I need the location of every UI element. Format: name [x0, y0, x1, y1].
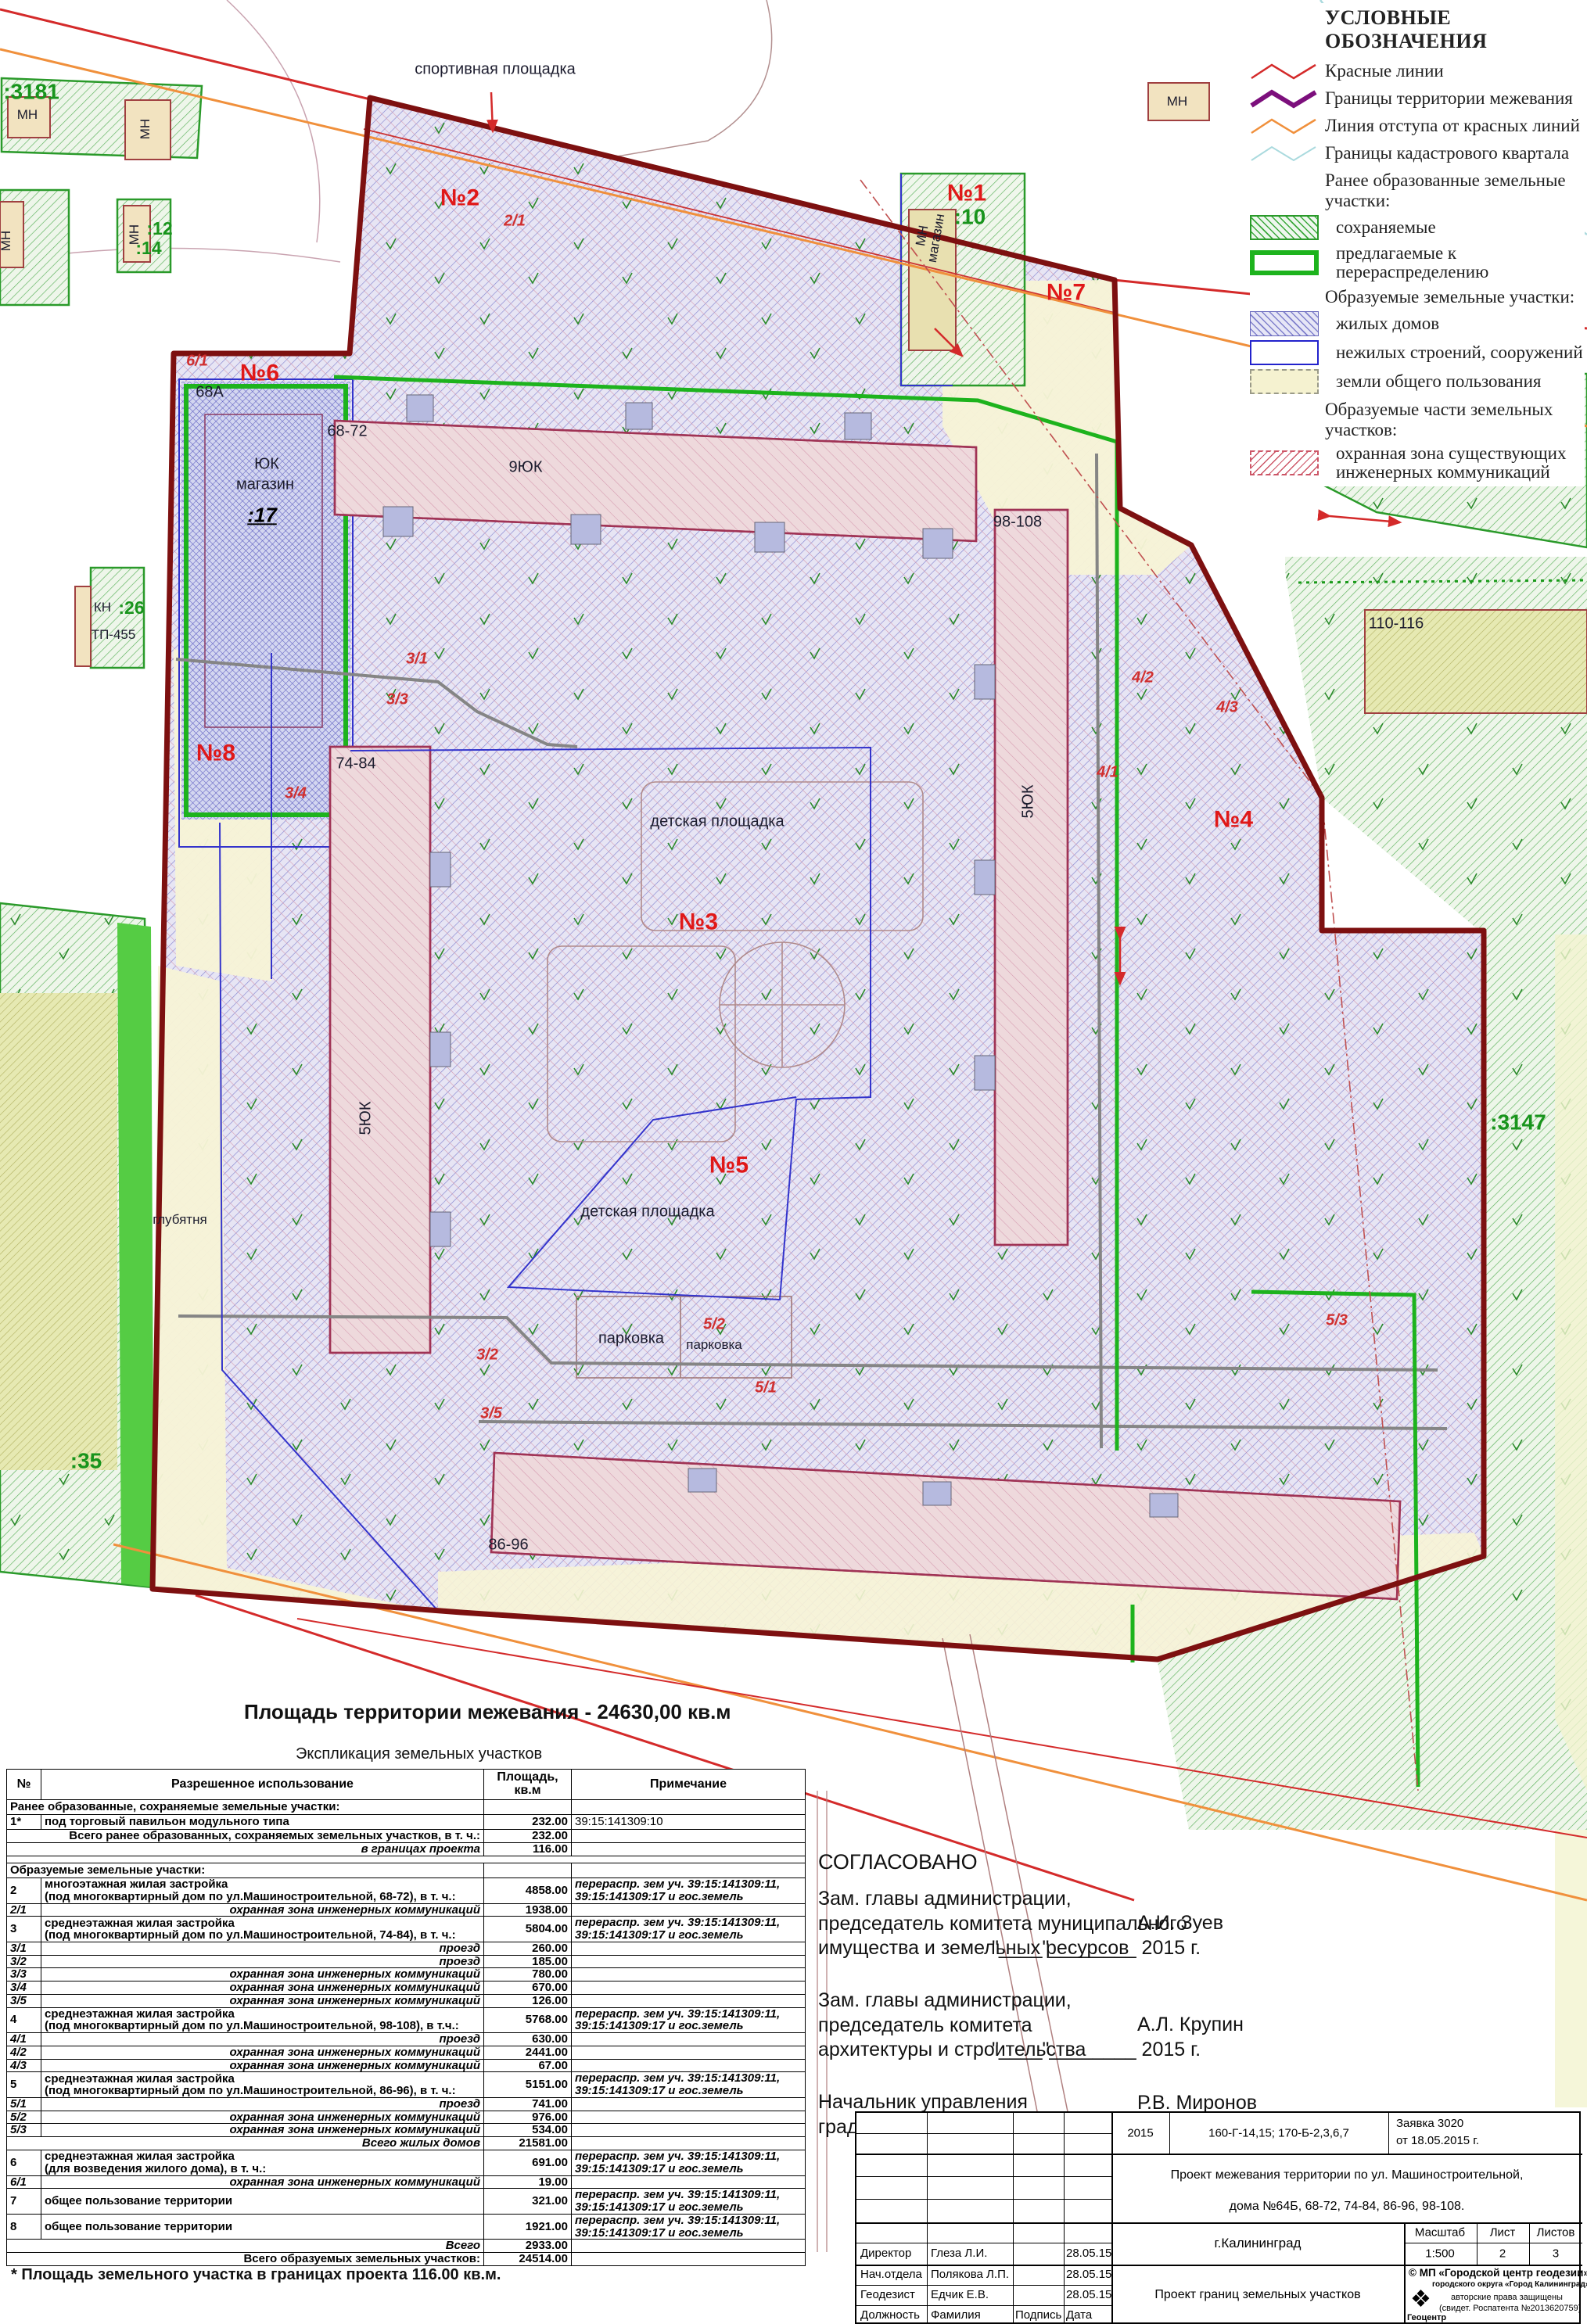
table-row: 2/1охранная зона инженерных коммуникаций… [7, 1903, 806, 1917]
explication-title: Экспликация земельных участков [296, 1745, 542, 1763]
table-cell: охранная зона инженерных коммуникаций [41, 1981, 484, 1995]
legend-label: предлагаемые к перераспределению [1336, 244, 1585, 282]
sw-red-dash [1250, 450, 1319, 475]
stamp-role: Геодезист [860, 2288, 915, 2301]
legend-item: предлагаемые к перераспределению [1250, 244, 1585, 282]
table-row: Всего образуемых земельных участков:2451… [7, 2253, 806, 2266]
parcel-10 [901, 174, 1025, 386]
table-row: 3/5охранная зона инженерных коммуникаций… [7, 1994, 806, 2007]
table-cell [572, 2137, 806, 2150]
table-cell [572, 1981, 806, 1995]
table-cell: 1921.00 [484, 2214, 572, 2240]
legend-swatch [1250, 215, 1325, 240]
table-cell: общее пользование территории [41, 2214, 484, 2240]
table-cell: среднеэтажная жилая застройка(для возвед… [41, 2150, 484, 2176]
table-cell: среднеэтажная жилая застройка(под многок… [41, 2072, 484, 2098]
table-cell [572, 1942, 806, 1955]
table-cell [572, 1903, 806, 1917]
table-row: 5/3охранная зона инженерных коммуникаций… [7, 2124, 806, 2137]
table-cell: 4/3 [7, 2059, 41, 2072]
table-cell: проезд [41, 1942, 484, 1955]
legend-label: охранная зона существующих инженерных ко… [1336, 444, 1566, 482]
table-row: 4среднеэтажная жилая застройка(под много… [7, 2007, 806, 2033]
table-row: 7общее пользование территории321.00перер… [7, 2189, 806, 2215]
legend-label: нежилых строений, сооружений [1336, 343, 1583, 362]
table-cell: охранная зона инженерных коммуникаций [41, 2124, 484, 2137]
table-row: 2многоэтажная жилая застройка(под многок… [7, 1878, 806, 1904]
table-row: 4/2охранная зона инженерных коммуникаций… [7, 2046, 806, 2059]
stamp-name: Едчик Е.В. [931, 2288, 989, 2301]
table-cell [572, 1843, 806, 1856]
table-cell [572, 2240, 806, 2253]
table-cell [484, 1863, 572, 1878]
table-row: 3/3охранная зона инженерных коммуникаций… [7, 1968, 806, 1981]
table-row: 8общее пользование территории1921.00пере… [7, 2214, 806, 2240]
table-cell: 4858.00 [484, 1878, 572, 1904]
footnote: * Площадь земельного участка в границах … [11, 2266, 501, 2284]
signer-name: А.И. Зуев [1137, 1912, 1223, 1935]
legend-swatch [1250, 340, 1325, 365]
table-cell: 232.00 [484, 1815, 572, 1830]
signature-date-blank: "____"________ 2015 г. [992, 2039, 1201, 2061]
table-row: Всего ранее образованных, сохраняемых зе… [7, 1830, 806, 1843]
table-cell: 321.00 [484, 2189, 572, 2215]
stamp-date: 28.05.15 [1066, 2268, 1111, 2281]
legend-item: Линия отступа от красных линий [1250, 114, 1585, 138]
table-row: Всего2933.00 [7, 2240, 806, 2253]
table-cell [572, 2046, 806, 2059]
table-cell [572, 1994, 806, 2007]
table-row: 5/1проезд741.00 [7, 2097, 806, 2111]
stamp-scale-label: Масштаб [1415, 2226, 1465, 2240]
stamp-scale: 1:500 [1425, 2247, 1455, 2261]
table-cell: 2933.00 [484, 2240, 572, 2253]
legend-label: Границы территории межевания [1325, 89, 1573, 108]
table-cell: 691.00 [484, 2150, 572, 2176]
table-cell: 2 [7, 1878, 41, 1904]
title-block: 2015 160-Г-14,15; 170-Б-2,3,6,7 Заявка 3… [855, 2111, 1581, 2324]
stamp-name: Полякова Л.П. [931, 2268, 1009, 2281]
table-cell: охранная зона инженерных коммуникаций [41, 1903, 484, 1917]
stamp-col-name: Фамилия [931, 2308, 981, 2322]
stamp-date: 28.05.15 [1066, 2288, 1111, 2301]
table-cell: 2/1 [7, 1903, 41, 1917]
stamp-doc-number: 160-Г-14,15; 170-Б-2,3,6,7 [1208, 2127, 1349, 2140]
table-cell: 8 [7, 2214, 41, 2240]
table-cell: Всего жилых домов [7, 2137, 484, 2150]
table-cell: 5768.00 [484, 2007, 572, 2033]
table-row: 1*под торговый павильон модульного типа2… [7, 1815, 806, 1830]
table-row: 3среднеэтажная жилая застройка(под много… [7, 1917, 806, 1942]
legend-label: жилых домов [1336, 314, 1439, 333]
table-cell [572, 2124, 806, 2137]
table-cell: охранная зона инженерных коммуникаций [41, 2059, 484, 2072]
expl-table: №Разрешенное использованиеПлощадь, кв.мП… [6, 1769, 806, 2266]
table-cell [572, 2253, 806, 2266]
stamp-project-title-1: Проект межевания территории по ул. Машин… [1171, 2168, 1524, 2182]
legend-label: Красные линии [1325, 62, 1444, 81]
stamp-logo-text: Геоцентр [1407, 2313, 1446, 2322]
table-cell: проезд [41, 2033, 484, 2046]
explication-table-wrap: №Разрешенное использованиеПлощадь, кв.мП… [6, 1769, 806, 2266]
legend-label: сохраняемые [1336, 218, 1436, 237]
table-cell [572, 1968, 806, 1981]
table-cell: 780.00 [484, 1968, 572, 1981]
legend-item: охранная зона существующих инженерных ко… [1250, 444, 1585, 482]
drawing-sheet: №1№2№3№4№5№6№7№82/13/13/23/33/43/54/14/2… [0, 0, 1587, 2324]
legend-title: УСЛОВНЫЕ ОБОЗНАЧЕНИЯ [1325, 6, 1585, 53]
table-cell: 5151.00 [484, 2072, 572, 2098]
table-cell: 3/1 [7, 1942, 41, 1955]
legend-swatch [1250, 250, 1325, 275]
table-cell: среднеэтажная жилая застройка(под многок… [41, 1917, 484, 1942]
table-header-cell: Примечание [572, 1770, 806, 1800]
table-row: 4/3охранная зона инженерных коммуникаций… [7, 2059, 806, 2072]
stamp-sheet-label: Лист [1490, 2226, 1516, 2240]
legend-item: жилых домов [1250, 311, 1585, 336]
table-cell: 4/1 [7, 2033, 41, 2046]
table-cell: 4 [7, 2007, 41, 2033]
table-cell: под торговый павильон модульного типа [41, 1815, 484, 1830]
table-cell: 5 [7, 2072, 41, 2098]
table-cell: охранная зона инженерных коммуникаций [41, 1994, 484, 2007]
stamp-request-date: от 18.05.2015 г. [1396, 2134, 1479, 2147]
table-cell: охранная зона инженерных коммуникаций [41, 2046, 484, 2059]
table-cell: проезд [41, 1955, 484, 1968]
table-row: 3/2проезд185.00 [7, 1955, 806, 1968]
table-cell [572, 2175, 806, 2189]
table-cell: 3/2 [7, 1955, 41, 1968]
legend-line-symbol [1250, 59, 1325, 83]
stamp-year: 2015 [1127, 2127, 1153, 2140]
approval-title: СОГЛАСОВАНО [818, 1850, 1569, 1874]
table-cell: 6 [7, 2150, 41, 2176]
signer-name: А.Л. Крупин [1137, 2014, 1244, 2036]
legend-item: Границы территории межевания [1250, 87, 1585, 110]
table-cell: 2441.00 [484, 2046, 572, 2059]
legend-item: земли общего пользования [1250, 369, 1585, 394]
legend-label: Линия отступа от красных линий [1325, 117, 1580, 135]
table-cell: 260.00 [484, 1942, 572, 1955]
table-row: 5/2охранная зона инженерных коммуникаций… [7, 2111, 806, 2124]
approval-signer: Зам. главы администрации, председатель к… [818, 1989, 1569, 2064]
table-cell: 976.00 [484, 2111, 572, 2124]
table-cell: охранная зона инженерных коммуникаций [41, 2111, 484, 2124]
table-row: 5среднеэтажная жилая застройка(под много… [7, 2072, 806, 2098]
stamp-city: г.Калининград [1215, 2236, 1302, 2251]
table-cell [572, 2111, 806, 2124]
stamp-sheet: 2 [1499, 2247, 1506, 2261]
table-header-cell: Разрешенное использование [41, 1770, 484, 1800]
stamp-name: Глеза Л.И. [931, 2247, 987, 2260]
stamp-date: 28.05.15 [1066, 2247, 1111, 2260]
table-cell: в границах проекта [7, 1843, 484, 1856]
legend: УСЛОВНЫЕ ОБОЗНАЧЕНИЯ Красные линииГраниц… [1250, 3, 1585, 486]
table-row [7, 1856, 806, 1863]
legend-item: сохраняемые [1250, 215, 1585, 240]
legend-line-symbol [1250, 114, 1325, 138]
table-cell: среднеэтажная жилая застройка(под многок… [41, 2007, 484, 2033]
table-cell: 5/2 [7, 2111, 41, 2124]
geocentr-logo-icon: ❖ [1410, 2288, 1431, 2311]
legend-items: Красные линииГраницы территории межевани… [1250, 59, 1585, 482]
stamp-role: Нач.отдела [860, 2268, 922, 2281]
stamp-col-role: Должность [860, 2308, 920, 2322]
table-cell: 3 [7, 1917, 41, 1942]
table-cell: охранная зона инженерных коммуникаций [41, 2175, 484, 2189]
table-row: 3/4охранная зона инженерных коммуникаций… [7, 1981, 806, 1995]
territory-area-note: Площадь территории межевания - 24630,00 … [244, 1700, 731, 1724]
signer-line: Зам. главы администрации, [818, 1887, 1569, 1912]
table-cell: Всего образуемых земельных участков: [7, 2253, 484, 2266]
table-cell: перераспр. зем уч. 39:15:141309:11, 39:1… [572, 2214, 806, 2240]
expl-table-head: №Разрешенное использованиеПлощадь, кв.мП… [7, 1770, 806, 1800]
table-cell: Образуемые земельные участки: [7, 1863, 484, 1878]
table-cell: перераспр. зем уч. 39:15:141309:11, 39:1… [572, 2072, 806, 2098]
table-cell: 6/1 [7, 2175, 41, 2189]
sw-yellow [1250, 369, 1319, 394]
table-cell [484, 1800, 572, 1815]
table-cell: 67.00 [484, 2059, 572, 2072]
stamp-doc-type: Проект границ земельных участков [1154, 2288, 1360, 2302]
stamp-rights: авторские права защищены [1451, 2293, 1563, 2302]
table-cell: 1* [7, 1815, 41, 1830]
legend-header: Образуемые земельные участки: [1325, 287, 1585, 307]
sw-green-border [1250, 250, 1319, 275]
table-row: 6/1охранная зона инженерных коммуникаций… [7, 2175, 806, 2189]
legend-line-symbol [1250, 87, 1325, 110]
table-row: 4/1проезд630.00 [7, 2033, 806, 2046]
table-cell: 630.00 [484, 2033, 572, 2046]
table-row: 3/1проезд260.00 [7, 1942, 806, 1955]
table-cell: 670.00 [484, 1981, 572, 1995]
table-cell: охранная зона инженерных коммуникаций [41, 1968, 484, 1981]
stamp-sheets-label: Листов [1537, 2226, 1575, 2240]
table-row: Ранее образованные, сохраняемые земельны… [7, 1800, 806, 1815]
table-cell [572, 1830, 806, 1843]
table-cell: 116.00 [484, 1843, 572, 1856]
table-row: Всего жилых домов21581.00 [7, 2137, 806, 2150]
stamp-org-2: городского округа «Город Калининград» [1432, 2280, 1587, 2289]
table-cell: 741.00 [484, 2097, 572, 2111]
stamp-org: © МП «Городской центр геодезии» [1409, 2267, 1587, 2279]
stamp-sheets: 3 [1553, 2247, 1559, 2261]
table-cell [572, 2033, 806, 2046]
stamp-project-title-2: дома №64Б, 68-72, 74-84, 86-96, 98-108. [1230, 2200, 1465, 2214]
table-cell: 126.00 [484, 1994, 572, 2007]
legend-label: Границы кадастрового квартала [1325, 144, 1569, 163]
table-cell: 21581.00 [484, 2137, 572, 2150]
approval-signer: Зам. главы администрации, председатель к… [818, 1887, 1569, 1962]
legend-item: Границы кадастрового квартала [1250, 142, 1585, 165]
stamp-col-date: Дата [1066, 2308, 1092, 2322]
table-cell: 3/4 [7, 1981, 41, 1995]
legend-item: нежилых строений, сооружений [1250, 340, 1585, 365]
table-cell [572, 1863, 806, 1878]
table-cell: 24514.00 [484, 2253, 572, 2266]
legend-swatch [1250, 311, 1325, 336]
table-cell: перераспр. зем уч. 39:15:141309:11, 39:1… [572, 2189, 806, 2215]
stamp-request: Заявка 3020 [1396, 2117, 1463, 2130]
sw-blue-cross [1250, 340, 1319, 365]
table-cell [572, 1800, 806, 1815]
table-cell: перераспр. зем уч. 39:15:141309:11, 39:1… [572, 1917, 806, 1942]
table-cell: Всего [7, 2240, 484, 2253]
table-header-cell: № [7, 1770, 41, 1800]
table-cell: 5804.00 [484, 1917, 572, 1942]
signer-line: Зам. главы администрации, [818, 1989, 1569, 2014]
legend-header: Ранее образованные земельные участки: [1325, 170, 1585, 211]
table-cell: 1938.00 [484, 1903, 572, 1917]
stamp-rights-2: (свидет. Роспатента №2013620759) [1439, 2304, 1581, 2313]
table-cell: перераспр. зем уч. 39:15:141309:11, 39:1… [572, 1878, 806, 1904]
table-cell: 3/5 [7, 1994, 41, 2007]
legend-swatch [1250, 450, 1325, 475]
table-cell: 5/3 [7, 2124, 41, 2137]
parcel-17 [179, 379, 353, 847]
table-cell [572, 2059, 806, 2072]
table-cell: перераспр. зем уч. 39:15:141309:11, 39:1… [572, 2150, 806, 2176]
table-cell: 39:15:141309:10 [572, 1815, 806, 1830]
legend-header: Образуемые части земельных участков: [1325, 400, 1585, 440]
table-cell: Ранее образованные, сохраняемые земельны… [7, 1800, 484, 1815]
legend-item: Красные линии [1250, 59, 1585, 83]
table-cell: 4/2 [7, 2046, 41, 2059]
expl-table-body: Ранее образованные, сохраняемые земельны… [7, 1800, 806, 2266]
table-cell: общее пользование территории [41, 2189, 484, 2215]
table-cell [572, 1955, 806, 1968]
table-row: 6среднеэтажная жилая застройка(для возве… [7, 2150, 806, 2176]
table-cell: 7 [7, 2189, 41, 2215]
table-cell: 185.00 [484, 1955, 572, 1968]
stamp-role: Директор [860, 2247, 911, 2260]
sw-blue-hatch [1250, 311, 1319, 336]
legend-line-symbol [1250, 142, 1325, 165]
sw-green-hatch [1250, 215, 1319, 240]
table-cell: 232.00 [484, 1830, 572, 1843]
stamp-col-sign: Подпись [1015, 2308, 1061, 2322]
table-cell: 3/3 [7, 1968, 41, 1981]
table-cell: перераспр. зем уч. 39:15:141309:11, 39:1… [572, 2007, 806, 2033]
table-cell [572, 2097, 806, 2111]
table-cell: многоэтажная жилая застройка(под многокв… [41, 1878, 484, 1904]
signature-date-blank: "____"________ 2015 г. [992, 1937, 1201, 1960]
table-cell: 19.00 [484, 2175, 572, 2189]
table-cell [7, 1856, 806, 1863]
table-cell: Всего ранее образованных, сохраняемых зе… [7, 1830, 484, 1843]
table-row: Образуемые земельные участки: [7, 1863, 806, 1878]
legend-swatch [1250, 369, 1325, 394]
table-header-cell: Площадь, кв.м [484, 1770, 572, 1800]
table-cell: 534.00 [484, 2124, 572, 2137]
table-row: в границах проекта116.00 [7, 1843, 806, 1856]
table-cell: проезд [41, 2097, 484, 2111]
legend-label: земли общего пользования [1336, 372, 1542, 391]
table-cell: 5/1 [7, 2097, 41, 2111]
